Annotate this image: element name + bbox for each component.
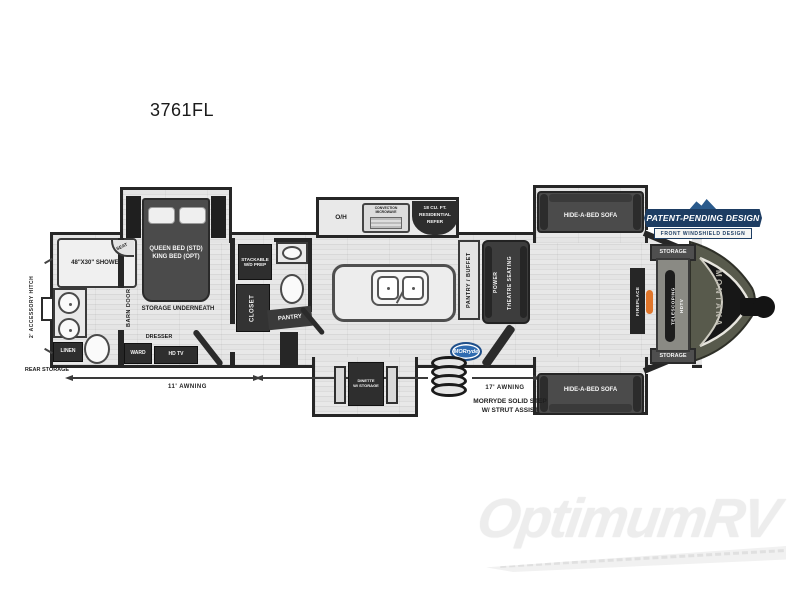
pillow-left <box>148 207 175 224</box>
dinette-table: DINETTE W/ STORAGE <box>348 362 384 406</box>
refer-label-2: RESIDENTIAL <box>412 213 458 219</box>
accessory-hitch-bracket <box>41 297 52 321</box>
step-label-1: MORRYDE SOLID STEP <box>425 398 595 405</box>
washer-label: STACKABLE W/D PREP <box>241 257 269 267</box>
rear-storage-label: REAR STORAGE <box>24 367 70 373</box>
pantry-label: PANTRY <box>278 313 303 322</box>
dresser-label: DRESSER <box>122 334 196 340</box>
sofa-bottom-label: HIDE-A-BED SOFA <box>539 387 642 394</box>
fireplace: FIREPLACE <box>630 268 645 334</box>
overhead-cabinet-label: O/H <box>322 200 360 236</box>
ward-label: WARD <box>130 351 145 357</box>
pantry-buffet: PANTRY / BUFFET <box>458 240 480 320</box>
theatre-label-2: THEATRE SEATING <box>503 244 519 322</box>
midbath-sink <box>282 246 302 260</box>
front-storage-top-label: STORAGE <box>659 249 686 255</box>
kitchen-island <box>332 264 456 322</box>
microwave-label: CONVECTION MICROWAVE <box>366 207 406 215</box>
montana-brand-text: MONTANA <box>714 270 723 328</box>
vanity-sink-1 <box>58 292 80 314</box>
dinette-bench-right <box>386 366 398 404</box>
accessory-hitch-label: 2' ACCESSORY HITCH <box>28 258 38 356</box>
convection-microwave: CONVECTION MICROWAVE <box>362 203 410 233</box>
badge-line2: FRONT WINDSHIELD DESIGN <box>661 231 746 237</box>
shower-seat-label: SEAT <box>115 242 128 252</box>
optimumrv-watermark: OptimumRV <box>478 486 793 576</box>
model-number: 3761FL <box>150 100 214 121</box>
entry-steps <box>431 356 469 400</box>
bed-label-1: QUEEN BED (STD) <box>144 246 208 253</box>
closet-wall-upper <box>230 238 235 324</box>
floorplan-page: OptimumRV 3761FL 48"X30" SHOWER SEAT LIN… <box>0 0 800 600</box>
washer-dryer-prep: STACKABLE W/D PREP <box>238 244 272 280</box>
badge-line1: PATENT-PENDING DESIGN <box>647 213 760 223</box>
closet: CLOSET <box>236 284 270 332</box>
dinette-label-2: W/ STORAGE <box>353 384 379 389</box>
awning-line-left <box>72 377 254 379</box>
awning-left-label: 11' AWNING <box>168 384 207 391</box>
sofa-top-label: HIDE-A-BED SOFA <box>539 213 642 220</box>
morryde-logo-text: MORryde <box>454 349 478 355</box>
theatre-seating: POWER THEATRE SEATING <box>482 240 530 324</box>
midbath-wall-right <box>308 238 312 312</box>
dinette-bench-left <box>334 366 346 404</box>
front-storage-bottom-label: STORAGE <box>659 353 686 359</box>
bedroom-tv: HD TV <box>154 346 198 364</box>
storage-underneath-label: STORAGE UNDERNEATH <box>128 306 228 313</box>
midbath-counter <box>276 242 308 264</box>
double-sink <box>371 270 429 306</box>
step-label-2: W/ STRUT ASSIST <box>425 407 595 414</box>
linen-cabinet: LINEN <box>53 342 83 362</box>
tv-label-2: HDTV <box>677 286 686 326</box>
awning-right-label: 17' AWNING <box>470 385 540 392</box>
vanity-sink-2 <box>58 318 80 340</box>
fireplace-flame-icon <box>646 290 653 314</box>
shower-label: 48"X30" SHOWER <box>69 260 125 267</box>
sofa-top: HIDE-A-BED SOFA <box>537 191 644 233</box>
nightstand-right <box>211 196 226 238</box>
closet-wall-lower <box>230 352 235 368</box>
watermark-text: OptimumRV <box>474 486 798 550</box>
theatre-label-1: POWER <box>492 250 502 314</box>
badge-subbanner: FRONT WINDSHIELD DESIGN <box>654 228 752 239</box>
nightstand-left <box>126 196 141 238</box>
toilet <box>84 334 110 364</box>
residential-refrigerator: 18 CU. FT. RESIDENTIAL REFER <box>412 201 458 235</box>
refer-label-3: REFER <box>412 220 458 226</box>
hdtv-label: HD TV <box>169 352 184 358</box>
patent-badge: PATENT-PENDING DESIGN FRONT WINDSHIELD D… <box>644 199 762 245</box>
linen-label: LINEN <box>61 349 76 355</box>
awning-line-right-b <box>472 377 534 379</box>
refer-label-1: 18 CU. FT. <box>412 206 458 212</box>
bed-label-2: KING BED (OPT) <box>144 254 208 261</box>
midbath-toilet <box>280 274 304 304</box>
badge-banner: PATENT-PENDING DESIGN <box>644 209 762 227</box>
entry-cabinet <box>280 332 298 366</box>
pillow-right <box>179 207 206 224</box>
bed: QUEEN BED (STD) KING BED (OPT) <box>142 198 210 302</box>
telescoping-tv-cabinet: TELESCOPING HDTV <box>656 258 690 352</box>
wardrobe: WARD <box>124 343 152 364</box>
